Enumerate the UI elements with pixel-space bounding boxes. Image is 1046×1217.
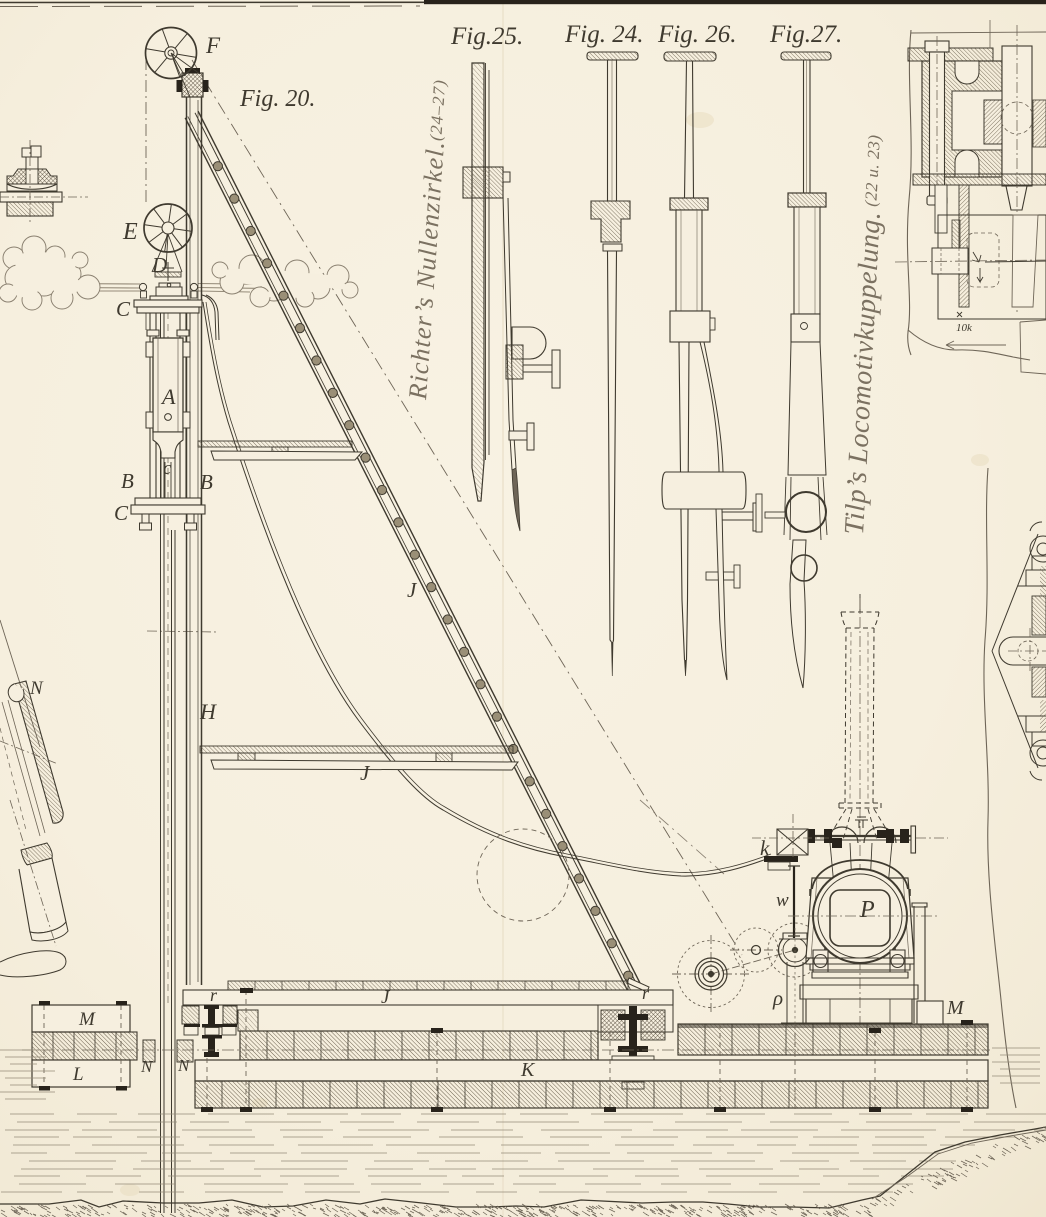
svg-text:r: r: [642, 983, 650, 1003]
svg-text:A: A: [160, 384, 176, 409]
svg-text:E: E: [122, 219, 138, 245]
svg-text:Fig.25.: Fig.25.: [450, 23, 523, 50]
svg-text:M: M: [78, 1009, 96, 1030]
svg-text:K: K: [520, 1059, 536, 1081]
svg-text:Fig. 20.: Fig. 20.: [239, 86, 315, 112]
svg-text:10k: 10k: [956, 322, 973, 334]
svg-text:ρ: ρ: [772, 986, 783, 1010]
svg-text:F: F: [205, 33, 221, 58]
svg-text:c: c: [163, 458, 172, 479]
svg-text:Fig. 24.: Fig. 24.: [564, 21, 643, 48]
svg-text:B: B: [200, 470, 213, 494]
svg-text:w: w: [776, 890, 789, 911]
svg-text:N: N: [140, 1057, 154, 1076]
svg-text:r: r: [210, 985, 218, 1005]
svg-text:L: L: [72, 1064, 84, 1085]
svg-text:M: M: [946, 997, 965, 1019]
svg-text:H: H: [199, 699, 217, 724]
svg-text:C: C: [114, 501, 129, 525]
svg-text:N: N: [177, 1056, 191, 1075]
svg-text:C: C: [116, 297, 131, 321]
svg-text:k: k: [760, 836, 770, 860]
svg-text:P: P: [859, 897, 875, 923]
svg-text:Fig. 26.: Fig. 26.: [657, 21, 736, 48]
svg-text:Fig.27.: Fig.27.: [769, 21, 842, 48]
svg-text:N: N: [29, 678, 44, 699]
svg-text:B: B: [121, 469, 134, 493]
